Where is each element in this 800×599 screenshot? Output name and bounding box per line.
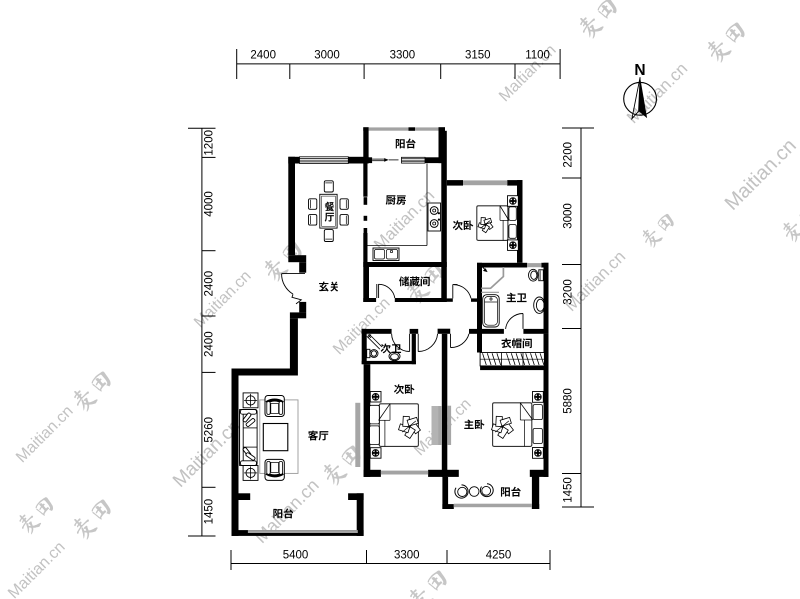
svg-text:3000: 3000 <box>563 203 575 229</box>
svg-text:2400: 2400 <box>204 331 216 357</box>
svg-text:2400: 2400 <box>204 271 216 297</box>
svg-text:1450: 1450 <box>563 477 575 503</box>
svg-text:2400: 2400 <box>250 50 276 62</box>
svg-text:3300: 3300 <box>390 50 416 62</box>
svg-text:5260: 5260 <box>204 417 216 443</box>
svg-text:4250: 4250 <box>486 550 512 562</box>
svg-text:5400: 5400 <box>283 550 309 562</box>
svg-text:N: N <box>634 62 645 79</box>
svg-text:4000: 4000 <box>204 191 216 217</box>
svg-text:3150: 3150 <box>465 50 491 62</box>
svg-text:3200: 3200 <box>563 279 575 305</box>
svg-text:Maitian.cn: Maitian.cn <box>13 403 77 467</box>
svg-text:5880: 5880 <box>563 388 575 414</box>
svg-text:Maitian.cn: Maitian.cn <box>721 135 800 215</box>
svg-text:Maitian.cn: Maitian.cn <box>5 539 69 599</box>
svg-text:Maitian.cn: Maitian.cn <box>191 268 255 332</box>
svg-text:3300: 3300 <box>394 550 420 562</box>
svg-text:1450: 1450 <box>204 499 216 525</box>
svg-text:1100: 1100 <box>525 50 550 62</box>
svg-text:3000: 3000 <box>314 50 340 62</box>
svg-text:2200: 2200 <box>563 142 575 168</box>
svg-text:1200: 1200 <box>204 130 216 156</box>
